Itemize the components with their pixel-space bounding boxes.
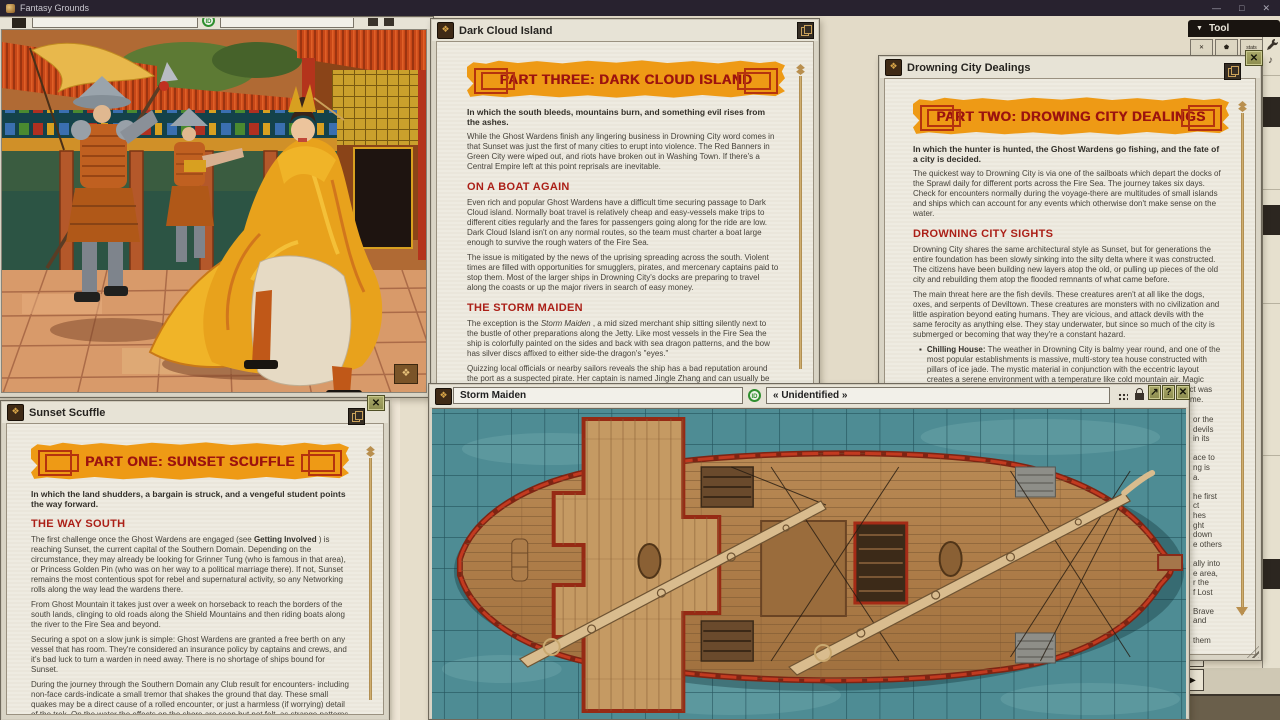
paragraph: The first challenge once the Ghost Warde… bbox=[31, 535, 349, 595]
story-icon: ❖ bbox=[437, 22, 454, 39]
spear-arrowhead-icon bbox=[1236, 607, 1248, 616]
image-identity-field[interactable] bbox=[220, 18, 354, 28]
text-run: The exception is the bbox=[467, 319, 541, 328]
scrollbar-spear-decoration[interactable] bbox=[1241, 113, 1244, 614]
close-icon[interactable]: ✕ bbox=[367, 395, 385, 411]
chapter-intro: In which the land shudders, a bargain is… bbox=[31, 489, 349, 509]
text-run-bold: Chilling House: bbox=[927, 345, 986, 354]
image-window-titlebar[interactable]: ID bbox=[0, 18, 432, 29]
sidebar-dark-segment[interactable] bbox=[1263, 559, 1280, 589]
lock-icon[interactable] bbox=[1135, 393, 1144, 400]
chevron-down-icon: ▼ bbox=[1196, 25, 1203, 32]
identity-toggle-icon[interactable]: ID bbox=[748, 389, 761, 402]
help-icon[interactable]: ? bbox=[1162, 385, 1175, 400]
chapter-banner: PART ONE: SUNSET SCUFFLE bbox=[31, 442, 349, 480]
paragraph: During the journey through the Southern … bbox=[31, 680, 349, 715]
paragraph: Securing a spot on a slow junk is simple… bbox=[31, 635, 349, 675]
banner-corner-ornament bbox=[474, 68, 508, 94]
paragraph: The exception is the Storm Maiden , a mi… bbox=[467, 319, 779, 359]
window-dark-cloud-island: ❖ Dark Cloud Island PART THREE: DARK CLO… bbox=[430, 18, 820, 390]
banner-corner-ornament bbox=[744, 68, 778, 94]
chapter-intro: In which the south bleeds, mountains bur… bbox=[467, 107, 779, 127]
text-run: The first challenge once the Ghost Warde… bbox=[31, 535, 254, 544]
share-icon[interactable] bbox=[797, 22, 814, 39]
app-title: Fantasy Grounds bbox=[20, 3, 89, 13]
image-window-icon bbox=[12, 18, 26, 28]
share-icon[interactable] bbox=[1224, 63, 1241, 80]
image-name-field[interactable] bbox=[32, 18, 198, 28]
paragraph: From Ghost Mountain it takes just over a… bbox=[31, 600, 349, 630]
sidebar-divider bbox=[1263, 75, 1280, 76]
dice-tool-button[interactable]: ✕ bbox=[1190, 39, 1213, 56]
text-run-bold: Getting Involved bbox=[254, 535, 317, 544]
os-titlebar[interactable]: Fantasy Grounds — □ ✕ bbox=[0, 0, 1280, 16]
section-heading: THE STORM MAIDEN bbox=[467, 302, 779, 314]
window-storm-maiden-map: ❖ Storm Maiden ID « Unidentified » ↗ ? ✕ bbox=[428, 383, 1190, 720]
chapter-banner-title: PART ONE: SUNSET SCUFFLE bbox=[85, 454, 295, 469]
paragraph: While the Ghost Wardens finish any linge… bbox=[467, 132, 779, 172]
sunset-title: Sunset Scuffle bbox=[29, 407, 105, 419]
banner-corner-ornament bbox=[308, 450, 342, 476]
drowning-title: Drowning City Dealings bbox=[907, 62, 1030, 74]
story-icon: ❖ bbox=[885, 59, 902, 76]
scrollbar-spear-decoration[interactable] bbox=[799, 76, 802, 369]
window-controls: — □ ✕ bbox=[1212, 3, 1280, 14]
banner-corner-ornament bbox=[920, 105, 954, 131]
desktop-wood-strip bbox=[1178, 694, 1280, 720]
banner-corner-ornament bbox=[38, 450, 72, 476]
close-icon[interactable]: ✕ bbox=[1245, 50, 1263, 66]
chapter-banner: PART TWO: DROWING CITY DEALINGS bbox=[913, 97, 1229, 135]
paragraph: The quickest way to Drowning City is via… bbox=[913, 169, 1223, 219]
section-heading: THE WAY SOUTH bbox=[31, 518, 349, 530]
text-run-italic: Storm Maiden bbox=[541, 319, 591, 328]
paragraph: Drowning City shares the same architectu… bbox=[913, 245, 1223, 285]
paragraph: The main threat here are the fish devils… bbox=[913, 290, 1223, 340]
chapter-banner-title: PART TWO: DROWING CITY DEALINGS bbox=[936, 109, 1205, 124]
sidebar-divider bbox=[1263, 303, 1280, 304]
clipped-text-column: or the devils in its ace to ng is a. he … bbox=[1193, 415, 1227, 645]
scrollbar-spear-decoration[interactable] bbox=[369, 458, 372, 700]
sunset-content: PART ONE: SUNSET SCUFFLE In which the la… bbox=[6, 423, 384, 715]
section-heading: DROWNING CITY SIGHTS bbox=[913, 228, 1223, 240]
story-icon: ❖ bbox=[7, 404, 24, 421]
section-heading: ON A BOAT AGAIN bbox=[467, 181, 779, 193]
fantasy-grounds-app: ♪ ▼ Tool ✕ ⬟ stats ↷ ▶ Fantasy Grounds —… bbox=[0, 0, 1280, 720]
share-icon[interactable] bbox=[348, 408, 365, 425]
map-icon: ❖ bbox=[435, 388, 452, 405]
paragraph: Quizzing local officials or nearby sailo… bbox=[467, 364, 779, 384]
dark-cloud-title: Dark Cloud Island bbox=[459, 25, 553, 37]
pop-out-icon[interactable]: ↗ bbox=[1148, 385, 1161, 400]
sidebar-divider bbox=[1263, 189, 1280, 190]
artwork-illustration[interactable]: ❖ bbox=[1, 29, 427, 393]
tool-panel-header[interactable]: ▼ Tool bbox=[1188, 20, 1280, 37]
token-icon[interactable] bbox=[368, 18, 378, 26]
paragraph: The issue is mitigated by the news of th… bbox=[467, 253, 779, 293]
chapter-intro: In which the hunter is hunted, the Ghost… bbox=[913, 144, 1223, 164]
dark-cloud-content: PART THREE: DARK CLOUD ISLAND In which t… bbox=[436, 41, 814, 384]
window-sunset-scuffle: ❖ Sunset Scuffle ✕ PART ONE: SUNSET SCUF… bbox=[0, 400, 390, 720]
minimize-button[interactable]: — bbox=[1212, 3, 1221, 14]
drowning-titlebar[interactable]: ❖ Drowning City Dealings bbox=[880, 57, 1260, 78]
map-name-field[interactable]: Storm Maiden bbox=[453, 387, 743, 404]
sidebar-dark-segment[interactable] bbox=[1263, 205, 1280, 235]
identity-toggle-icon[interactable]: ID bbox=[202, 18, 215, 27]
lock-icon[interactable] bbox=[384, 18, 394, 26]
sidebar-divider bbox=[1263, 455, 1280, 456]
window-image-viewer: ID bbox=[0, 16, 434, 398]
map-identity-field[interactable]: « Unidentified » bbox=[766, 387, 1110, 404]
token-tool-button[interactable]: ⬟ bbox=[1215, 39, 1238, 56]
maximize-button[interactable]: □ bbox=[1239, 3, 1244, 14]
paragraph: Even rich and popular Ghost Wardens have… bbox=[467, 198, 779, 248]
chapter-banner-title: PART THREE: DARK CLOUD ISLAND bbox=[500, 72, 753, 87]
sidebar-dark-segment[interactable] bbox=[1263, 97, 1280, 127]
close-icon[interactable]: ✕ bbox=[1176, 385, 1190, 400]
image-corner-button[interactable]: ❖ bbox=[394, 364, 418, 384]
dark-cloud-titlebar[interactable]: ❖ Dark Cloud Island bbox=[432, 20, 818, 41]
sunset-titlebar[interactable]: ❖ Sunset Scuffle bbox=[2, 402, 388, 423]
chapter-banner: PART THREE: DARK CLOUD ISLAND bbox=[467, 60, 785, 98]
app-icon bbox=[6, 4, 15, 13]
tool-panel-label: Tool bbox=[1209, 23, 1229, 34]
music-note-icon[interactable]: ♪ bbox=[1268, 55, 1273, 66]
close-button[interactable]: ✕ bbox=[1262, 3, 1270, 14]
ship-battle-map[interactable] bbox=[432, 408, 1186, 719]
banner-corner-ornament bbox=[1188, 105, 1222, 131]
token-bag-icon[interactable] bbox=[1117, 392, 1128, 401]
right-sidebar-scrollbar[interactable]: ♪ bbox=[1262, 37, 1280, 720]
